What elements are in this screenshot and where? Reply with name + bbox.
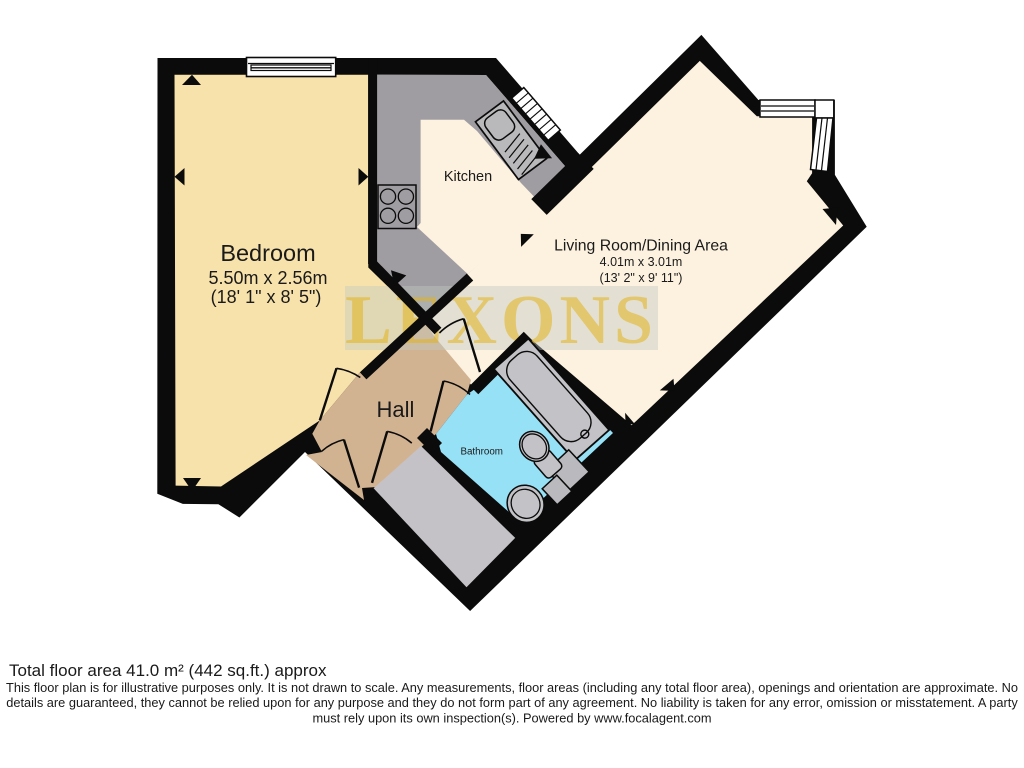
svg-text:This floor plan is for illustr: This floor plan is for illustrative purp… — [6, 680, 1018, 695]
svg-text:Total floor area 41.0 m² (442: Total floor area 41.0 m² (442 sq.ft.) ap… — [9, 661, 327, 680]
svg-text:Hall: Hall — [377, 397, 415, 422]
svg-text:5.50m x 2.56m: 5.50m x 2.56m — [208, 268, 327, 288]
svg-text:4.01m x 3.01m: 4.01m x 3.01m — [600, 255, 683, 269]
svg-text:Bathroom: Bathroom — [460, 447, 502, 458]
svg-text:(18' 1" x 8' 5"): (18' 1" x 8' 5") — [211, 287, 322, 307]
svg-text:Bedroom: Bedroom — [220, 240, 315, 266]
svg-text:Living Room/Dining Area: Living Room/Dining Area — [554, 238, 728, 255]
svg-text:Kitchen: Kitchen — [444, 169, 492, 185]
svg-text:must rely upon its own inspect: must rely upon its own inspection(s). Po… — [312, 710, 711, 725]
svg-text:(13' 2" x 9' 11"): (13' 2" x 9' 11") — [600, 271, 683, 285]
svg-text:details are guaranteed, they c: details are guaranteed, they cannot be r… — [6, 695, 1018, 710]
